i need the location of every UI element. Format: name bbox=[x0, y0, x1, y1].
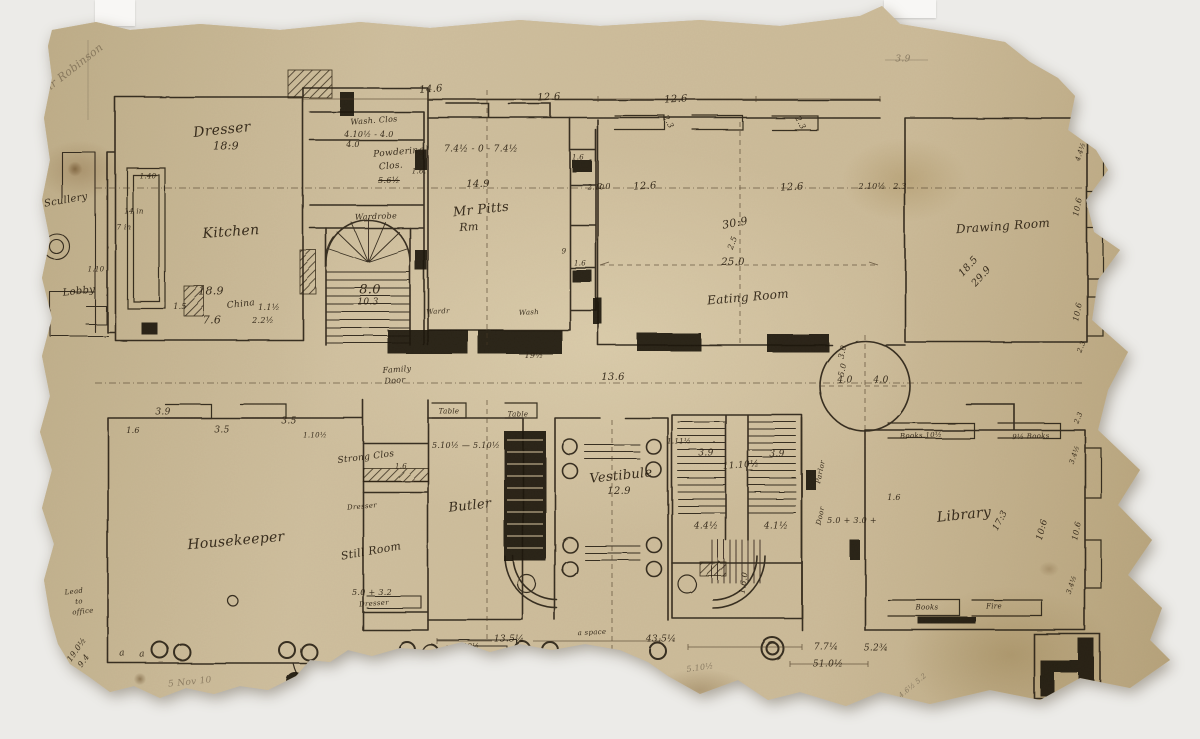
plan-label: 2.3 bbox=[1072, 109, 1083, 123]
paper-wrap: Dresser18:9Kitchen1.4014 in7 in18.91.5Ch… bbox=[0, 0, 1200, 739]
plan-label: 6 bbox=[471, 654, 476, 661]
paper-sheet: Dresser18:9Kitchen1.4014 in7 in18.91.5Ch… bbox=[0, 0, 1200, 739]
plan-label: 2.3 bbox=[1124, 371, 1139, 381]
plan-label: 2.4½ bbox=[1121, 379, 1144, 391]
plan-label: 2+3 bbox=[1091, 209, 1109, 217]
plan-label: 16 bbox=[1137, 53, 1149, 62]
floor-plan-drawing bbox=[0, 0, 1200, 739]
screenshot-root: { "document": { "description": "Hand-dra… bbox=[0, 0, 1200, 739]
plan-label: 4.3 bbox=[1132, 191, 1146, 207]
plan-label: 51.1 bbox=[1121, 400, 1141, 411]
plan-label: 10.3 bbox=[1125, 351, 1145, 362]
plan-label: 16.5 bbox=[1124, 360, 1144, 371]
paper-grain bbox=[0, 0, 1200, 739]
plan-label: 10.9 bbox=[1126, 342, 1146, 353]
plan-label: 2.3 bbox=[1123, 389, 1138, 399]
